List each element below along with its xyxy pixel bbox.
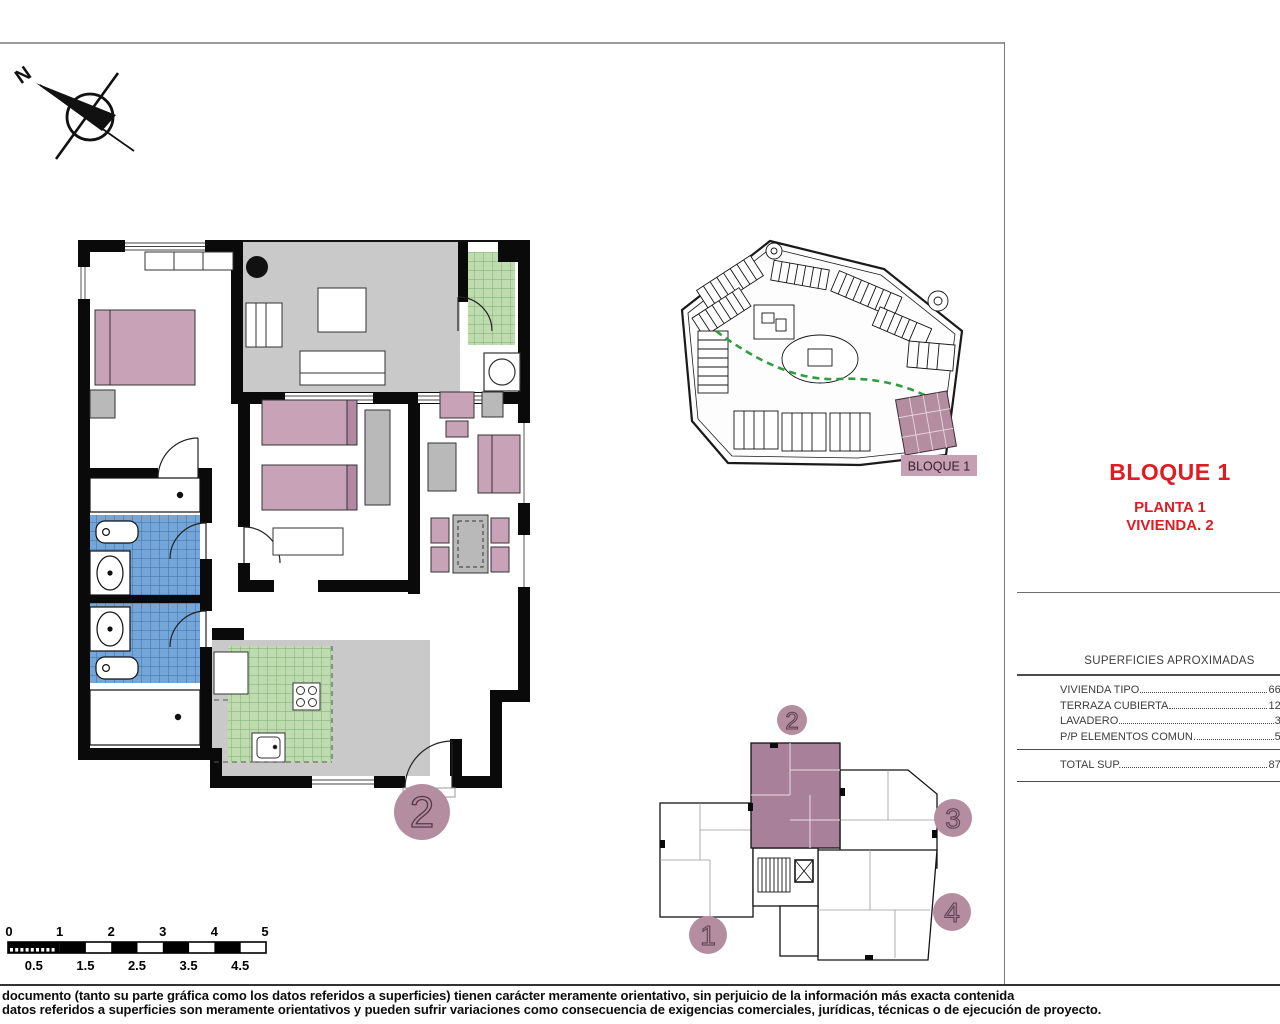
block-label: BLOQUE 1 xyxy=(901,455,977,476)
bedside-table xyxy=(90,390,115,418)
badge-2: 2 xyxy=(785,708,798,735)
svg-text:1.5: 1.5 xyxy=(76,958,94,973)
dining-chair xyxy=(491,547,509,572)
scale-bar-graphic xyxy=(8,942,266,953)
row-value: 66,22 xyxy=(1268,684,1280,696)
svg-text:5: 5 xyxy=(261,924,268,939)
floor-plan: 2 xyxy=(60,225,560,855)
north-arrow: N xyxy=(10,55,150,165)
stove xyxy=(293,683,320,710)
row-label: VIVIENDA TIPO xyxy=(1060,684,1139,696)
bathtub xyxy=(90,690,200,745)
coffee-table xyxy=(428,443,456,491)
disclaimer-line-1: documento (tanto su parte gráfica como l… xyxy=(2,988,1014,1003)
svg-text:0: 0 xyxy=(5,924,12,939)
plan-sheet: N xyxy=(0,0,1280,1024)
badge-1: 1 xyxy=(700,920,716,951)
tv-unit xyxy=(440,392,474,418)
svg-text:0.5: 0.5 xyxy=(25,958,43,973)
bedroom-2 xyxy=(262,400,390,555)
dwelling-title: VIVIENDA. 2 xyxy=(1070,517,1270,534)
table-row: TERRAZA CUBIERTA12,16 xyxy=(1017,700,1280,716)
dot-leader xyxy=(1119,723,1273,724)
svg-text:2: 2 xyxy=(108,924,115,939)
scale-top-labels: 0 1 2 3 4 5 xyxy=(5,924,268,939)
desk xyxy=(273,528,343,555)
wardrobe xyxy=(365,410,390,505)
dot-leader xyxy=(1197,739,1274,740)
row-value: 12,16 xyxy=(1268,700,1280,712)
svg-text:4: 4 xyxy=(211,924,219,939)
table-rule-thin xyxy=(1017,781,1280,782)
scale-bar: 0 1 2 3 4 5 xyxy=(2,920,274,974)
row-value: 3,56 xyxy=(1275,715,1280,727)
dot-leader xyxy=(1140,692,1267,693)
site-plan: BLOQUE 1 xyxy=(670,235,990,495)
dot-leader xyxy=(1169,708,1267,709)
unit-2-highlight xyxy=(751,743,840,848)
table-total-row: TOTAL SUP.87,86 xyxy=(1017,759,1280,777)
floor-title: PLANTA 1 xyxy=(1070,499,1270,516)
row-label: P/P ELEMENTOS COMUN. xyxy=(1060,731,1196,743)
bathtub xyxy=(90,478,200,512)
single-bed-2 xyxy=(262,465,357,510)
panel-divider-rule xyxy=(1017,592,1280,593)
surfaces-table-title: SUPERFICIES APROXIMADAS xyxy=(1017,655,1280,667)
dining-chair xyxy=(431,518,449,543)
table-rule-thin xyxy=(1017,749,1280,750)
sofa xyxy=(478,435,520,493)
dot-leader xyxy=(1122,767,1267,768)
frame-vertical-rule xyxy=(1004,42,1005,985)
master-bedroom xyxy=(90,252,233,418)
svg-text:3.5: 3.5 xyxy=(180,958,198,973)
dining-chair xyxy=(431,547,449,572)
svg-text:4.5: 4.5 xyxy=(231,958,249,973)
key-plan: 1 2 3 4 xyxy=(640,700,990,985)
table-row: LAVADERO3,56 xyxy=(1017,715,1280,731)
compass-north-label: N xyxy=(11,62,35,88)
terrace-bench xyxy=(300,351,385,385)
table-row: P/P ELEMENTOS COMUN.5,96 xyxy=(1017,731,1280,747)
elevator xyxy=(795,860,813,882)
block-title: BLOQUE 1 xyxy=(1070,459,1270,486)
badge-3: 3 xyxy=(945,803,961,834)
block-label-text: BLOQUE 1 xyxy=(908,460,971,474)
kitchen-cabinet xyxy=(214,652,248,694)
dining-chair xyxy=(491,518,509,543)
unit-number-badge: 2 xyxy=(394,784,450,840)
unit-number: 2 xyxy=(410,788,434,837)
svg-text:3: 3 xyxy=(159,924,166,939)
single-bed-1 xyxy=(262,400,357,445)
table-rule-thick xyxy=(1017,674,1280,676)
total-label: TOTAL SUP. xyxy=(1060,759,1121,771)
laundry-tiled-floor xyxy=(468,252,515,345)
frame-top-rule xyxy=(0,42,1005,44)
disclaimer-line-2: datos referidos a superficies son merame… xyxy=(2,1002,1101,1017)
living-room xyxy=(428,392,520,573)
svg-text:1: 1 xyxy=(56,924,63,939)
round-table xyxy=(246,256,268,278)
scale-bottom-labels: 0.5 1.5 2.5 3.5 4.5 xyxy=(25,958,249,973)
row-value: 5,96 xyxy=(1275,731,1280,743)
laundry xyxy=(484,353,520,391)
badge-4: 4 xyxy=(944,897,960,928)
terrace-window-unit xyxy=(246,303,282,347)
terrace-table xyxy=(318,288,366,332)
unit-4-outline xyxy=(818,850,937,960)
row-label: LAVADERO xyxy=(1060,715,1118,727)
surfaces-table: SUPERFICIES APROXIMADAS VIVIENDA TIPO66,… xyxy=(1017,655,1280,782)
highlighted-block xyxy=(896,391,957,455)
svg-text:2.5: 2.5 xyxy=(128,958,146,973)
total-value: 87,86 xyxy=(1268,759,1280,771)
row-label: TERRAZA CUBIERTA xyxy=(1060,700,1168,712)
table-row: VIVIENDA TIPO66,22 xyxy=(1017,684,1280,700)
